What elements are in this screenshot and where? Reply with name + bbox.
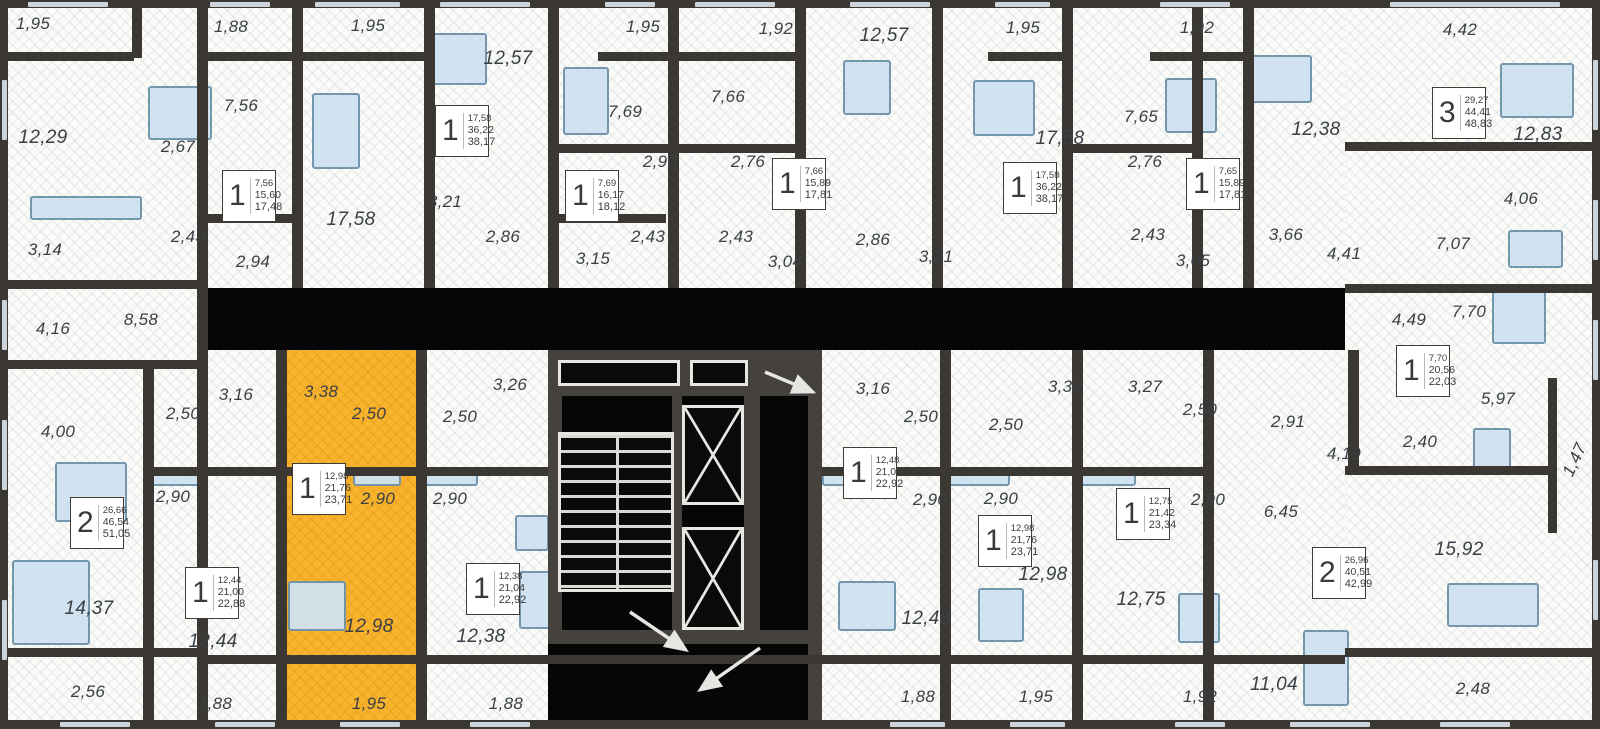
- furniture: [515, 515, 549, 551]
- room-area-label: 1,95: [1006, 18, 1040, 38]
- unit-info-box[interactable]: 226,9640,5142,99: [1312, 547, 1366, 599]
- wall: [143, 363, 154, 720]
- window-slot: [2, 80, 7, 140]
- unit-area-value: 38,17: [1036, 193, 1064, 206]
- unit-area-value: 42,99: [1345, 578, 1373, 591]
- unit-type-number: 1: [299, 474, 320, 504]
- unit-area-value: 36,22: [1036, 181, 1064, 193]
- room-area-label: 3,27: [1128, 377, 1162, 397]
- window-slot: [2, 600, 7, 660]
- unit-areas: 29,2744,4148,83: [1460, 95, 1493, 132]
- unit-info-box[interactable]: 112,7521,4223,34: [1116, 488, 1170, 540]
- room-area-label: 4,49: [1392, 310, 1426, 330]
- wall: [795, 8, 806, 288]
- unit-area-value: 18,12: [598, 201, 626, 214]
- room-area-label: 2,50: [989, 415, 1023, 435]
- window-slot: [315, 2, 400, 7]
- furniture: [838, 581, 896, 631]
- unit-areas: 12,9821,7623,71: [1006, 523, 1039, 560]
- room-area-label: 2,48: [1456, 679, 1490, 699]
- wall: [988, 52, 1062, 61]
- unit-type-number: 1: [192, 578, 213, 608]
- window-slot: [1593, 320, 1598, 380]
- room-area-label: 2,50: [443, 407, 477, 427]
- unit-area-value: 7,56: [255, 178, 283, 189]
- room-area-label: 3,16: [219, 385, 253, 405]
- room-area-label: 3,15: [576, 249, 610, 269]
- room-area-label: 2,90: [1191, 490, 1225, 510]
- furniture: [30, 196, 142, 220]
- unit-info-box[interactable]: 112,4421,0022,88: [185, 567, 239, 619]
- room-area-label: 7,70: [1452, 302, 1486, 322]
- room-area-label: 2,91: [1271, 412, 1305, 432]
- room-area-label: 14,37: [64, 598, 113, 620]
- furniture: [843, 60, 891, 115]
- room-area-label: 3,16: [856, 379, 890, 399]
- room-area-label: 2,67: [161, 137, 195, 157]
- wall: [1548, 378, 1557, 533]
- unit-type-number: 1: [442, 116, 463, 146]
- wall: [948, 467, 1072, 476]
- unit-areas: 26,6646,5451,05: [98, 505, 131, 542]
- room-area-label: 1,88: [489, 694, 523, 714]
- furniture: [1303, 630, 1349, 706]
- furniture: [312, 93, 360, 169]
- wall: [1078, 467, 1203, 476]
- wall: [132, 8, 142, 58]
- room-area-label: 3,05: [1176, 251, 1210, 271]
- unit-type-number: 1: [985, 526, 1006, 556]
- wall: [8, 648, 198, 657]
- corridor: [198, 288, 1345, 350]
- unit-area-value: 15,89: [805, 177, 833, 189]
- unit-area-value: 12,38: [499, 571, 527, 582]
- furniture: [973, 80, 1035, 136]
- room-area-label: 2,50: [166, 404, 200, 424]
- window-slot: [1010, 722, 1065, 727]
- wall: [205, 52, 292, 61]
- room-area-label: 4,06: [1504, 189, 1538, 209]
- room-area-label: 1,88: [198, 694, 232, 714]
- wall: [1150, 52, 1243, 61]
- room-area-label: 12,98: [1018, 564, 1067, 586]
- window-slot: [605, 2, 655, 7]
- unit-area-value: 17,58: [1036, 170, 1064, 181]
- room-area-label: 2,90: [156, 487, 190, 507]
- unit-area-value: 15,60: [255, 189, 283, 201]
- room-area-label: 2,86: [486, 227, 520, 247]
- window-slot: [1440, 722, 1510, 727]
- room-area-label: 1,95: [16, 14, 50, 34]
- core-wall: [808, 350, 822, 720]
- room-area-label: 2,76: [731, 152, 765, 172]
- unit-info-box[interactable]: 17,6916,1718,12: [565, 170, 619, 222]
- wall: [276, 350, 287, 720]
- room-area-label: 2,90: [361, 489, 395, 509]
- furniture: [1508, 230, 1563, 268]
- unit-area-value: 12,75: [1149, 496, 1177, 507]
- wall: [1243, 8, 1254, 288]
- room-area-label: 3,21: [919, 247, 953, 267]
- unit-type-number: 3: [1439, 98, 1460, 128]
- window-slot: [215, 722, 275, 727]
- furniture: [1500, 63, 1574, 118]
- room-area-label: 15,92: [1434, 539, 1483, 561]
- furniture: [1250, 55, 1312, 103]
- unit-areas: 12,4421,0022,88: [213, 575, 246, 612]
- wall: [668, 52, 795, 61]
- unit-info-box[interactable]: 117,5836,2238,17: [435, 105, 489, 157]
- room-area-label: 12,38: [1291, 119, 1340, 141]
- window-slot: [210, 2, 270, 7]
- room-area-label: 12,75: [1116, 589, 1165, 611]
- room-area-label: 2,50: [1183, 400, 1217, 420]
- unit-info-box[interactable]: 17,6515,8917,81: [1186, 158, 1240, 210]
- unit-area-value: 22,03: [1429, 376, 1457, 389]
- elevator-icon: [682, 527, 744, 630]
- unit-areas: 17,5836,2238,17: [1031, 170, 1064, 207]
- unit-info-box[interactable]: 112,9821,7623,71: [292, 463, 346, 515]
- unit-area-value: 21,42: [1149, 507, 1177, 519]
- room-area-label: 7,56: [224, 96, 258, 116]
- room-area-label: 3,38: [1048, 377, 1082, 397]
- unit-area-value: 22,92: [876, 478, 904, 491]
- wall: [598, 52, 668, 61]
- room-area-label: 2,40: [1403, 432, 1437, 452]
- window-slot: [1160, 2, 1230, 7]
- room-area-label: 1,88: [214, 17, 248, 37]
- unit-area-value: 23,34: [1149, 519, 1177, 532]
- room-area-label: 4,42: [1443, 20, 1477, 40]
- room-area-label: 3,38: [304, 382, 338, 402]
- unit-info-box[interactable]: 112,9821,7623,71: [978, 515, 1032, 567]
- unit-areas: 12,3821,0422,92: [494, 571, 527, 608]
- unit-areas: 12,9821,7623,71: [320, 471, 353, 508]
- furniture: [1447, 583, 1539, 627]
- unit-area-value: 20,56: [1429, 364, 1457, 376]
- unit-area-value: 22,92: [499, 594, 527, 607]
- unit-areas: 7,6615,8917,81: [800, 166, 833, 203]
- room-area-label: 2,94: [236, 252, 270, 272]
- unit-area-value: 36,22: [468, 124, 496, 136]
- unit-area-value: 7,65: [1219, 166, 1247, 177]
- wall: [302, 52, 424, 61]
- wall: [8, 280, 198, 289]
- unit-area-value: 38,17: [468, 136, 496, 149]
- unit-info-box[interactable]: 226,6646,5451,05: [70, 497, 124, 549]
- room-area-label: 17,58: [326, 209, 375, 231]
- room-area-label: 2,43: [631, 227, 665, 247]
- room-area-label: 7,66: [711, 87, 745, 107]
- room-area-label: 1,88: [901, 687, 935, 707]
- core-wall: [744, 390, 760, 642]
- unit-areas: 17,5836,2238,17: [463, 113, 496, 150]
- window-slot: [2, 300, 7, 350]
- unit-area-value: 17,48: [255, 201, 283, 214]
- unit-area-value: 12,44: [218, 575, 246, 586]
- room-area-label: 6,45: [1264, 502, 1298, 522]
- unit-areas: 12,7521,4223,34: [1144, 496, 1177, 533]
- furniture: [978, 588, 1024, 642]
- room-area-label: 7,65: [1124, 107, 1158, 127]
- unit-area-value: 21,76: [325, 482, 353, 494]
- room-area-label: 1,92: [1183, 687, 1217, 707]
- unit-area-value: 17,58: [468, 113, 496, 124]
- room-area-label: 2,43: [1131, 225, 1165, 245]
- unit-type-number: 1: [473, 574, 494, 604]
- window-slot: [2, 420, 7, 490]
- room-area-label: 12,98: [344, 616, 393, 638]
- elevator-icon: [682, 405, 744, 505]
- unit-area-value: 29,27: [1465, 95, 1493, 106]
- unit-areas: 12,4821,0422,92: [871, 455, 904, 492]
- window-slot: [1175, 722, 1225, 727]
- wall: [940, 350, 951, 720]
- window-slot: [1390, 2, 1560, 7]
- room-area-label: 4,16: [36, 319, 70, 339]
- room-area-label: 12,29: [18, 127, 67, 149]
- unit-area-value: 17,81: [805, 189, 833, 202]
- unit-info-box[interactable]: 112,3821,0422,92: [466, 563, 520, 615]
- room-area-label: 2,90: [984, 489, 1018, 509]
- unit-area-value: 23,71: [325, 494, 353, 507]
- unit-area-value: 44,41: [1465, 106, 1493, 118]
- window-slot: [995, 2, 1050, 7]
- unit-type-number: 1: [1403, 356, 1424, 386]
- room-area-label: 1,95: [1019, 687, 1053, 707]
- room-area-label: 12,38: [456, 626, 505, 648]
- wall: [150, 467, 287, 476]
- unit-info-box[interactable]: 17,6615,8917,81: [772, 158, 826, 210]
- wall: [1072, 350, 1083, 720]
- unit-areas: 26,9640,5142,99: [1340, 555, 1373, 592]
- unit-type-number: 2: [1319, 558, 1340, 588]
- unit-area-value: 21,04: [499, 582, 527, 594]
- unit-area-value: 17,81: [1219, 189, 1247, 202]
- wall: [1345, 284, 1592, 293]
- unit-area-value: 21,76: [1011, 534, 1039, 546]
- wall: [8, 360, 198, 369]
- room-area-label: 2,43: [719, 227, 753, 247]
- wall: [8, 52, 134, 61]
- unit-area-value: 12,48: [876, 455, 904, 466]
- unit-area-value: 12,98: [1011, 523, 1039, 534]
- room-area-label: 7,69: [608, 102, 642, 122]
- unit-type-number: 1: [1123, 499, 1144, 529]
- unit-area-value: 26,96: [1345, 555, 1373, 566]
- unit-areas: 7,6515,8917,81: [1214, 166, 1247, 203]
- unit-area-value: 7,66: [805, 166, 833, 177]
- wall: [292, 8, 303, 288]
- unit-area-value: 51,05: [103, 528, 131, 541]
- window-slot: [340, 722, 400, 727]
- unit-info-box[interactable]: 17,5615,6017,48: [222, 170, 276, 222]
- unit-area-value: 23,71: [1011, 546, 1039, 559]
- wall: [416, 350, 427, 720]
- wall: [1345, 648, 1592, 657]
- room-area-label: 12,57: [483, 48, 532, 70]
- unit-areas: 7,6916,1718,12: [593, 178, 626, 215]
- room-area-label: 8,58: [124, 310, 158, 330]
- room-area-label: 1,95: [351, 16, 385, 36]
- unit-info-box[interactable]: 329,2744,4148,83: [1432, 87, 1486, 139]
- unit-area-value: 48,83: [1465, 118, 1493, 131]
- unit-area-value: 7,70: [1429, 353, 1457, 364]
- unit-type-number: 1: [779, 169, 800, 199]
- room-area-label: 1,95: [626, 17, 660, 37]
- wall: [1345, 466, 1548, 475]
- unit-info-box[interactable]: 17,7020,5622,03: [1396, 345, 1450, 397]
- furniture: [1492, 288, 1546, 344]
- room-area-label: 2,56: [71, 682, 105, 702]
- window-slot: [695, 2, 775, 7]
- wall: [1192, 8, 1203, 288]
- room-area-label: 12,57: [859, 25, 908, 47]
- room-area-label: 2,90: [643, 152, 677, 172]
- unit-area-value: 7,69: [598, 178, 626, 189]
- unit-type-number: 1: [1193, 169, 1214, 199]
- room-area-label: 7,07: [1436, 234, 1470, 254]
- wall: [932, 8, 943, 288]
- window-slot: [1290, 722, 1370, 727]
- room-area-label: 2,90: [913, 490, 947, 510]
- unit-info-box[interactable]: 112,4821,0422,92: [843, 447, 897, 499]
- floor-plan: 1,951,881,9512,571,951,9212,571,951,924,…: [0, 0, 1600, 729]
- window-slot: [1593, 560, 1598, 620]
- room-area-label: 4,41: [1327, 244, 1361, 264]
- room-area-label: 12,44: [188, 631, 237, 653]
- window-slot: [470, 722, 530, 727]
- core-wall: [548, 630, 822, 644]
- window-slot: [850, 2, 930, 7]
- room-area-label: 3,66: [1269, 225, 1303, 245]
- room-area-label: 11,04: [1250, 674, 1298, 696]
- room-area-label: 2,90: [433, 489, 467, 509]
- unit-type-number: 2: [77, 508, 98, 538]
- window-slot: [28, 2, 108, 7]
- room-area-label: 4,19: [1327, 444, 1361, 464]
- room-area-label: 12,48: [901, 608, 950, 630]
- unit-area-value: 22,88: [218, 598, 246, 611]
- unit-info-box[interactable]: 117,5836,2238,17: [1003, 162, 1057, 214]
- core-window: [690, 360, 748, 386]
- room-area-label: 2,76: [1128, 152, 1162, 172]
- furniture: [288, 581, 346, 631]
- room-area-label: 3,26: [493, 375, 527, 395]
- room-area-label: 2,50: [352, 404, 386, 424]
- unit-area-value: 21,00: [218, 586, 246, 598]
- room-area-label: 2,50: [904, 407, 938, 427]
- unit-type-number: 1: [229, 181, 250, 211]
- furniture: [563, 67, 609, 135]
- window-slot: [890, 722, 945, 727]
- room-area-label: 3,21: [428, 192, 462, 212]
- room-area-label: 3,04: [768, 252, 802, 272]
- furniture: [1165, 78, 1217, 133]
- core-window: [558, 360, 680, 386]
- room-area-label: 1,95: [352, 694, 386, 714]
- unit-area-value: 21,04: [876, 466, 904, 478]
- unit-area-value: 46,54: [103, 516, 131, 528]
- wall: [198, 655, 1345, 664]
- unit-area-value: 16,17: [598, 189, 626, 201]
- window-slot: [1593, 200, 1598, 260]
- window-slot: [60, 722, 130, 727]
- unit-area-value: 26,66: [103, 505, 131, 516]
- unit-areas: 7,7020,5622,03: [1424, 353, 1457, 390]
- unit-area-value: 40,51: [1345, 566, 1373, 578]
- room-area-label: 3,14: [28, 240, 62, 260]
- unit-areas: 7,5615,6017,48: [250, 178, 283, 215]
- room-area-label: 4,00: [41, 422, 75, 442]
- room-area-label: 2,86: [856, 230, 890, 250]
- window-slot: [440, 2, 530, 7]
- unit-area-value: 12,98: [325, 471, 353, 482]
- room-area-label: 12,83: [1513, 124, 1562, 146]
- room-area-label: 17,58: [1035, 128, 1084, 150]
- room-area-label: 2,43: [171, 227, 205, 247]
- room-area-label: 1,92: [1180, 18, 1214, 38]
- unit-type-number: 1: [1010, 173, 1031, 203]
- wall: [424, 8, 435, 288]
- unit-area-value: 15,89: [1219, 177, 1247, 189]
- unit-type-number: 1: [572, 181, 593, 211]
- room-area-label: 5,97: [1481, 389, 1515, 409]
- unit-type-number: 1: [850, 458, 871, 488]
- window-slot: [1593, 60, 1598, 130]
- room-area-label: 1,92: [759, 19, 793, 39]
- wall: [420, 467, 548, 476]
- stairs-icon: [558, 432, 674, 592]
